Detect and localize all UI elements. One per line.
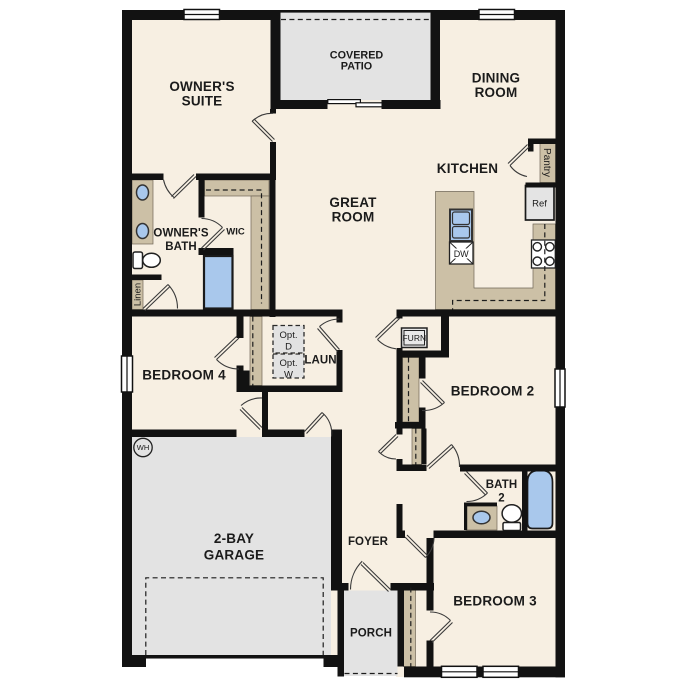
- svg-text:GREAT: GREAT: [329, 195, 377, 210]
- svg-text:DW: DW: [454, 249, 469, 259]
- svg-text:W: W: [284, 369, 293, 380]
- svg-text:KITCHEN: KITCHEN: [437, 161, 498, 176]
- svg-text:WIC: WIC: [226, 226, 245, 237]
- svg-text:SUITE: SUITE: [182, 94, 223, 109]
- svg-text:Opt.: Opt.: [280, 358, 298, 369]
- svg-text:GARAGE: GARAGE: [204, 548, 264, 563]
- svg-text:2: 2: [498, 493, 505, 505]
- svg-text:ROOM: ROOM: [475, 85, 518, 100]
- svg-text:WH: WH: [137, 443, 150, 452]
- svg-text:ROOM: ROOM: [332, 210, 375, 225]
- svg-text:LAUN: LAUN: [304, 355, 336, 367]
- svg-text:BEDROOM 2: BEDROOM 2: [451, 384, 535, 399]
- svg-text:BATH: BATH: [165, 241, 197, 253]
- svg-text:2-BAY: 2-BAY: [214, 531, 254, 546]
- svg-text:D: D: [285, 341, 292, 352]
- svg-text:DINING: DINING: [472, 71, 520, 86]
- svg-text:Pantry: Pantry: [541, 148, 552, 177]
- svg-text:FURN: FURN: [402, 333, 426, 343]
- svg-text:FOYER: FOYER: [348, 536, 389, 548]
- svg-text:Ref: Ref: [532, 198, 547, 209]
- svg-text:BATH: BATH: [486, 479, 518, 491]
- svg-text:Opt.: Opt.: [280, 330, 298, 341]
- svg-text:OWNER'S: OWNER'S: [153, 228, 208, 240]
- svg-text:BEDROOM 4: BEDROOM 4: [142, 368, 226, 383]
- svg-text:Linen: Linen: [133, 283, 144, 306]
- svg-text:PORCH: PORCH: [350, 628, 392, 640]
- svg-text:BEDROOM 3: BEDROOM 3: [453, 594, 537, 609]
- svg-text:OWNER'S: OWNER'S: [169, 79, 234, 94]
- svg-text:PATIO: PATIO: [341, 60, 372, 72]
